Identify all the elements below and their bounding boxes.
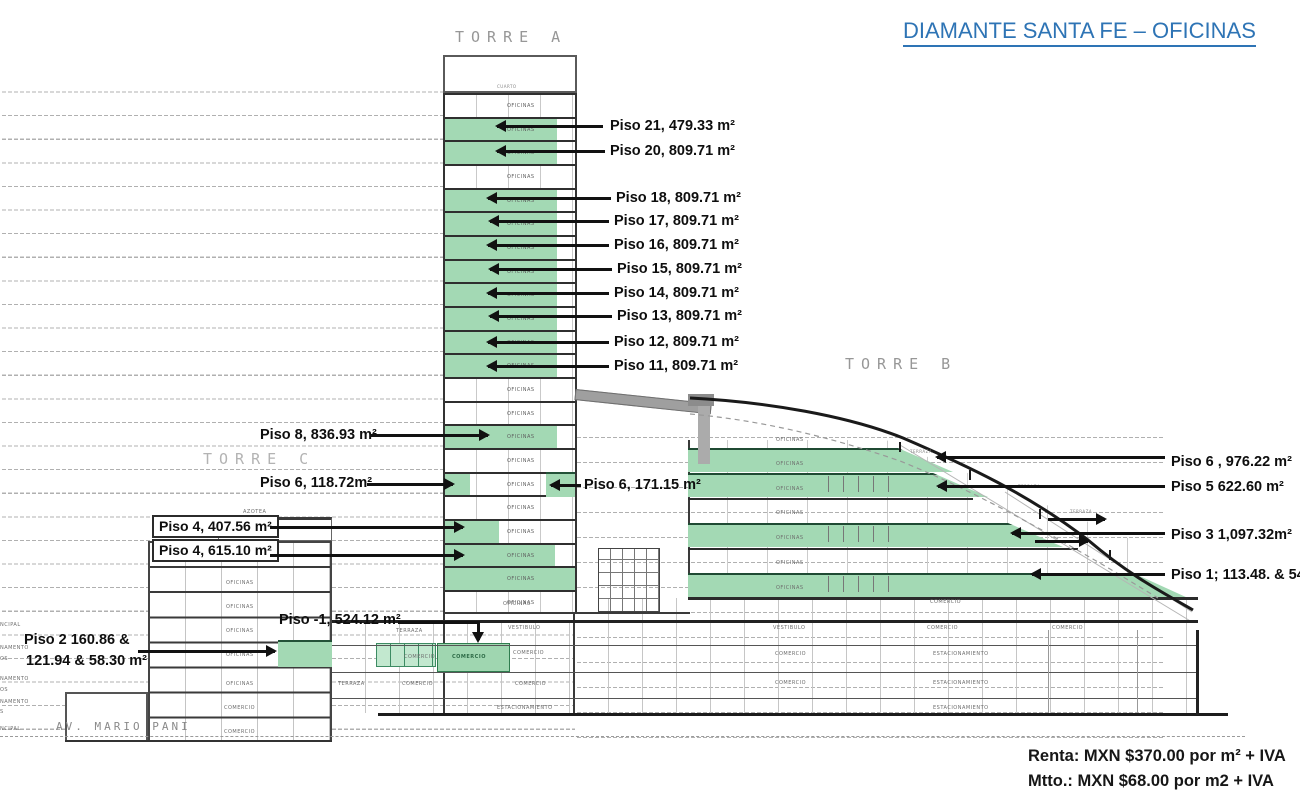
- drawing-label: ESTACIONAMIENTO: [933, 651, 989, 657]
- drawing-label: OFICINAS: [776, 560, 804, 566]
- arrow: [937, 456, 1165, 459]
- annotation-piso-11: Piso 11, 809.71 m²: [614, 358, 738, 375]
- drawing-label: TERRAZA: [338, 681, 365, 687]
- drawing-label: VESTIBULO: [508, 625, 540, 631]
- drawing-label: COMERCIO: [515, 681, 546, 687]
- drawing-label: NAMENTO: [0, 676, 29, 682]
- rent-price: Renta: MXN $370.00 por m² + IVA: [1028, 744, 1286, 769]
- arrow: [490, 268, 612, 271]
- drawing-label: OFICINAS: [226, 652, 254, 658]
- drawing-label: COMERCIO: [513, 650, 544, 656]
- drawing-label: OFICINAS: [776, 437, 804, 443]
- arrow: [497, 150, 605, 153]
- arrow-down: [477, 621, 480, 640]
- arrow: [138, 650, 275, 653]
- roof-step-arrow: [1035, 540, 1088, 543]
- drawing-label: CUARTO: [497, 84, 517, 90]
- drawing-label: VESTIBULO: [773, 625, 805, 631]
- drawing-label: ESTACIONAMIENTO: [933, 680, 989, 686]
- drawing-label: COMERCIO: [452, 654, 486, 660]
- annotation-piso-3: Piso 3 1,097.32m²: [1171, 527, 1292, 544]
- drawing-label: COMERCIO: [1052, 625, 1083, 631]
- drawing-label: OFICINAS: [226, 681, 254, 687]
- annotation-piso-6-torre-b: Piso 6 , 976.22 m²: [1171, 454, 1292, 471]
- drawing-label: OFICINAS: [776, 535, 804, 541]
- drawing-label: OFICINAS: [776, 510, 804, 516]
- arrow: [367, 483, 453, 486]
- drawing-label: OFICINAS: [776, 486, 804, 492]
- annotation-piso-minus1: Piso -1, 524.12 m²: [279, 612, 401, 629]
- annotation-piso-20: Piso 20, 809.71 m²: [610, 143, 735, 160]
- annotation-piso-15: Piso 15, 809.71 m²: [617, 261, 742, 278]
- annotation-piso-1: Piso 1; 113.48. & 543: [1171, 567, 1300, 584]
- drawing-label: NAMENTO: [0, 699, 29, 705]
- annotation-piso-16: Piso 16, 809.71 m²: [614, 237, 739, 254]
- pricing-block: Renta: MXN $370.00 por m² + IVA Mtto.: M…: [1028, 744, 1286, 794]
- drawing-label: OFICINAS: [503, 601, 531, 607]
- drawing-label: NCIPAL: [0, 622, 21, 628]
- drawing-label: OFICINAS: [226, 604, 254, 610]
- drawing-label: COMERCIO: [224, 705, 255, 711]
- arrow: [488, 341, 609, 344]
- drawing-label: NCIPAL: [0, 726, 21, 732]
- arrow: [938, 485, 1165, 488]
- drawing-label: TERRAZA: [910, 449, 932, 455]
- drawing-label: COMERCIO: [404, 654, 435, 660]
- drawing-label: COMERCIO: [402, 681, 433, 687]
- maintenance-price: Mtto.: MXN $68.00 por m2 + IVA: [1028, 769, 1286, 794]
- drawing-label: OS: [0, 656, 8, 662]
- annotation-piso-18: Piso 18, 809.71 m²: [616, 190, 741, 207]
- annotation-piso-6-torre-c: Piso 6, 118.72m²: [260, 475, 372, 492]
- drawing-label: OFICINAS: [226, 580, 254, 586]
- arrow-segment: [398, 621, 480, 624]
- annotation-piso-4b: Piso 4, 615.10 m²: [152, 539, 279, 562]
- drawing-label: ESTACIONAMIENTO: [933, 705, 989, 711]
- street-name: AV. MARIO PANI: [56, 720, 191, 733]
- elevation-drawing-canvas: OFICINAS OFICINAS OFICINAS OFICINAS OFIC…: [0, 0, 1300, 800]
- arrow: [490, 315, 612, 318]
- arrow: [497, 125, 603, 128]
- drawing-label: COMERCIO: [775, 680, 806, 686]
- drawing-label: S: [0, 709, 4, 715]
- arrow: [270, 554, 463, 557]
- drawing-label: OFICINAS: [776, 585, 804, 591]
- annotation-piso-6-torre-a: Piso 6, 171.15 m²: [584, 477, 701, 494]
- drawing-label: ESTACIONAMIENTO: [497, 705, 553, 711]
- drawing-label: TERRAZA: [1070, 509, 1092, 515]
- arrow: [488, 365, 609, 368]
- drawing-label: COMERCIO: [930, 599, 961, 605]
- drawing-label: OFICINAS: [776, 461, 804, 467]
- arrow: [551, 484, 581, 487]
- arrow: [488, 244, 609, 247]
- arrow: [1032, 573, 1165, 576]
- drawing-label: OFICINAS: [226, 628, 254, 634]
- annotation-piso-5: Piso 5 622.60 m²: [1171, 479, 1284, 496]
- roof-step-arrow: [1048, 518, 1105, 521]
- drawing-label: OS: [0, 687, 8, 693]
- annotation-piso-14: Piso 14, 809.71 m²: [614, 285, 739, 302]
- annotation-piso-12: Piso 12, 809.71 m²: [614, 334, 739, 351]
- annotation-piso-21: Piso 21, 479.33 m²: [610, 118, 735, 135]
- arrow: [270, 526, 463, 529]
- annotation-piso-17: Piso 17, 809.71 m²: [614, 213, 739, 230]
- annotation-piso-2-line1: Piso 2 160.86 &: [24, 632, 130, 649]
- arrow: [488, 197, 611, 200]
- drawing-label: COMERCIO: [775, 651, 806, 657]
- arrow: [488, 292, 609, 295]
- drawing-label: COMERCIO: [224, 729, 255, 735]
- annotation-piso-8: Piso 8, 836.93 m²: [260, 427, 377, 444]
- annotation-piso-4a: Piso 4, 407.56 m²: [152, 515, 279, 538]
- arrow: [490, 220, 609, 223]
- drawing-label: COMERCIO: [927, 625, 958, 631]
- arrow: [370, 434, 488, 437]
- page-title: DIAMANTE SANTA FE – OFICINAS: [903, 18, 1256, 47]
- annotation-piso-13: Piso 13, 809.71 m²: [617, 308, 742, 325]
- annotation-piso-2-line2: 121.94 & 58.30 m²: [26, 653, 147, 670]
